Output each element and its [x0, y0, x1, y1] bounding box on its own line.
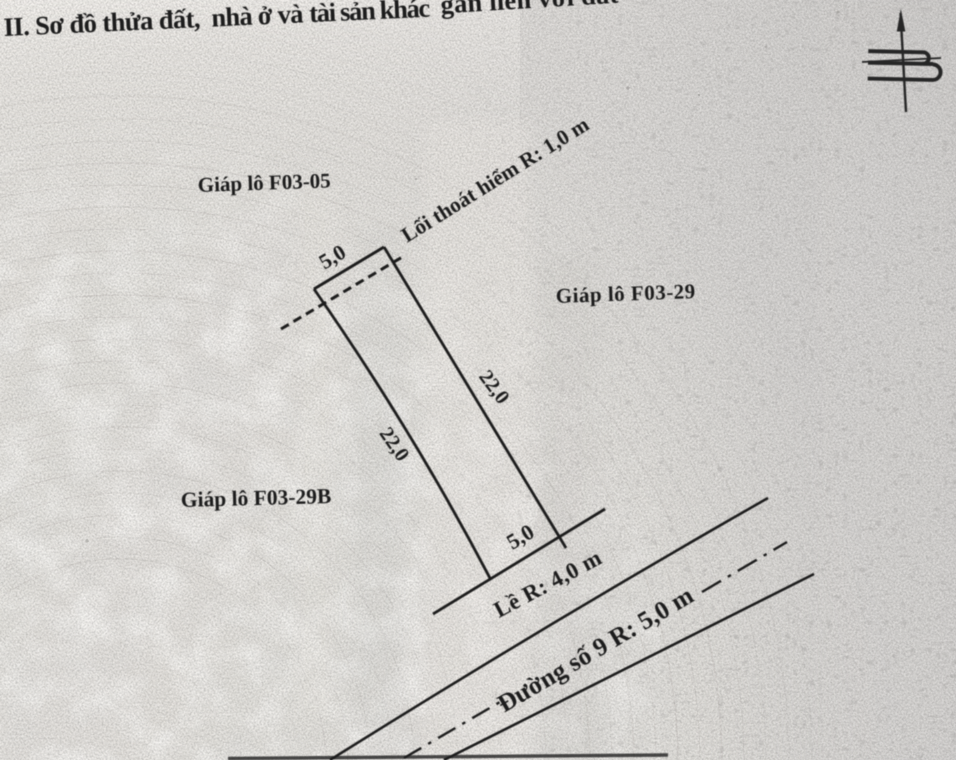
svg-text:Giáp lô F03-05: Giáp lô F03-05 — [197, 168, 331, 197]
svg-text:Giáp lô F03-29: Giáp lô F03-29 — [555, 279, 696, 308]
svg-text:nhà ở và: nhà ở và — [211, 0, 304, 33]
svg-text:Giáp lô F03-29B: Giáp lô F03-29B — [181, 484, 332, 512]
